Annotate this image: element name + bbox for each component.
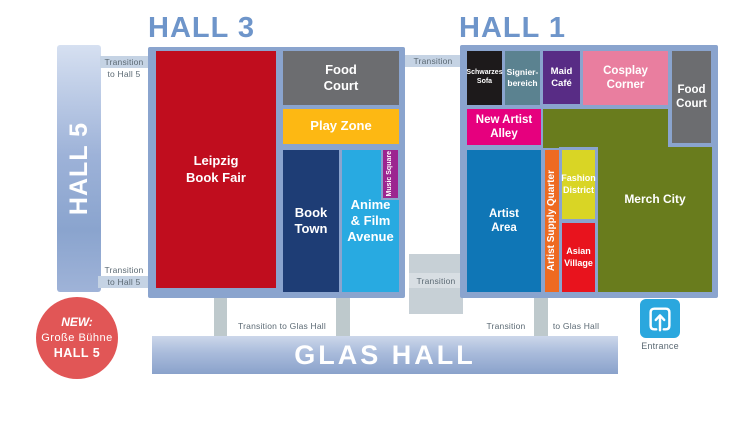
transition-label: Transition — [413, 56, 452, 66]
area-asian-village: Asian Village — [562, 223, 595, 292]
area-artist-supply-quarter: Artist Supply Quarter — [545, 150, 560, 292]
transition-label-bottom-left: Transition — [98, 265, 150, 275]
to-hall5-label: to Hall 5 — [108, 277, 141, 287]
transition-to-glas-hall-right-label-b: to Glas Hall — [550, 321, 602, 331]
area-signierbereich: Signier- bereich — [505, 51, 540, 105]
area-book-town: Book Town — [283, 150, 339, 292]
entrance-label: Entrance — [630, 341, 690, 351]
merch-city-label: Merch City — [610, 192, 700, 208]
area-maid-cafe: Maid Café — [543, 51, 580, 104]
glas-connector-3 — [534, 296, 548, 336]
hall3-title: HALL 3 — [148, 12, 255, 45]
transition-strip-bottom-left: to Hall 5 — [98, 276, 150, 288]
hall1: Merch City Schwarzes Sofa Signier- berei… — [460, 45, 718, 298]
badge-line1: NEW: — [61, 315, 93, 331]
transition-box-middle: Transition — [409, 254, 463, 314]
music-square-label: Music Square — [386, 151, 395, 197]
transition-strip-top-left: Transition — [100, 56, 148, 68]
transition-strip-top-middle: Transition — [405, 55, 461, 67]
transition-to-glas-hall-left-label: Transition to Glas Hall — [228, 321, 336, 331]
hall5-label: HALL 5 — [65, 122, 94, 215]
glas-hall-banner: GLAS HALL — [152, 336, 618, 374]
glas-connector-2 — [336, 296, 350, 336]
area-artist-area: Artist Area — [467, 150, 541, 292]
area-new-artist-alley: New Artist Alley — [467, 109, 541, 145]
area-food-court-hall1: Food Court — [672, 51, 711, 143]
to-hall5-label-top: to Hall 5 — [100, 69, 148, 79]
hall5-bar: HALL 5 — [57, 45, 101, 292]
hall3: Leipzig Book Fair Food Court Play Zone B… — [148, 47, 405, 298]
door-arrow-icon — [645, 304, 675, 334]
badge-line3: HALL 5 — [54, 345, 101, 361]
transition-band: Transition — [409, 273, 463, 288]
venue-map: HALL 3 HALL 1 HALL 5 Transition to Hall … — [0, 0, 750, 422]
area-schwarzes-sofa: Schwarzes Sofa — [467, 51, 502, 105]
new-hall5-badge: NEW: Große Bühne HALL 5 — [36, 297, 118, 379]
glas-connector-1 — [214, 296, 227, 336]
badge-line2: Große Bühne — [41, 331, 113, 345]
transition-to-glas-hall-right-label-a: Transition — [480, 321, 532, 331]
area-food-court-hall3: Food Court — [283, 51, 399, 105]
area-fashion-district: Fashion District — [562, 150, 595, 219]
area-music-square: Music Square — [383, 150, 398, 198]
transition-label: Transition — [104, 57, 143, 67]
entrance-icon — [640, 299, 680, 338]
area-cosplay-corner: Cosplay Corner — [583, 51, 668, 105]
area-play-zone: Play Zone — [283, 109, 399, 144]
glas-hall-label: GLAS HALL — [294, 340, 476, 371]
transition-label: Transition — [416, 276, 455, 286]
area-leipzig-book-fair: Leipzig Book Fair — [156, 51, 276, 288]
hall1-title: HALL 1 — [459, 12, 566, 45]
artist-supply-quarter-label: Artist Supply Quarter — [546, 170, 559, 271]
